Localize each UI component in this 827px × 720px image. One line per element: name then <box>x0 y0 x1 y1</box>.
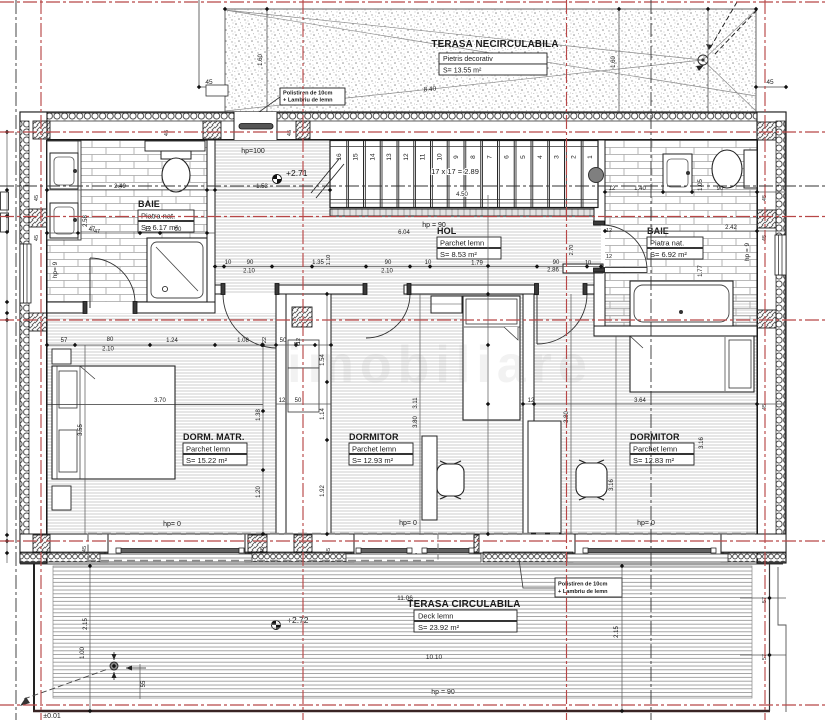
svg-text:12: 12 <box>403 153 410 161</box>
svg-text:22: 22 <box>262 337 268 343</box>
svg-text:45: 45 <box>164 130 170 136</box>
svg-text:Parchet lemn: Parchet lemn <box>186 445 230 454</box>
svg-text:+ Lambriu de lemn: + Lambriu de lemn <box>558 589 608 595</box>
svg-text:90: 90 <box>553 260 560 266</box>
svg-text:1.79: 1.79 <box>471 261 483 267</box>
svg-text:hp= 9: hp= 9 <box>52 261 59 278</box>
svg-text:S= 6.92 m²: S= 6.92 m² <box>650 250 687 259</box>
svg-text:45: 45 <box>287 130 293 136</box>
svg-text:+2.71: +2.71 <box>286 168 308 178</box>
svg-text:1.00: 1.00 <box>80 647 86 659</box>
svg-text:1.08: 1.08 <box>237 338 249 344</box>
svg-text:12: 12 <box>606 228 612 234</box>
svg-text:45: 45 <box>34 195 40 201</box>
svg-text:10: 10 <box>425 260 432 266</box>
svg-text:Deck lemn: Deck lemn <box>418 612 453 621</box>
svg-text:10: 10 <box>585 260 591 266</box>
svg-text:14: 14 <box>369 153 376 161</box>
svg-text:2: 2 <box>570 155 577 159</box>
svg-text:3.70: 3.70 <box>154 398 166 404</box>
svg-text:3: 3 <box>554 155 561 159</box>
svg-text:imobiliare: imobiliare <box>287 336 593 394</box>
svg-text:12: 12 <box>279 398 286 404</box>
svg-text:Polistiren de 10cm: Polistiren de 10cm <box>283 91 332 97</box>
svg-text:1.53: 1.53 <box>256 184 268 190</box>
svg-text:2.15: 2.15 <box>83 618 89 630</box>
svg-text:15: 15 <box>353 153 360 161</box>
svg-text:50: 50 <box>280 338 287 344</box>
svg-text:45: 45 <box>82 546 88 552</box>
svg-text:1.14: 1.14 <box>320 408 326 420</box>
svg-text:2.10: 2.10 <box>102 347 114 353</box>
svg-text:1.60: 1.60 <box>258 54 264 66</box>
svg-text:±0.01: ±0.01 <box>43 713 61 720</box>
svg-text:DORMITOR: DORMITOR <box>349 432 399 442</box>
svg-text:1: 1 <box>587 155 594 159</box>
svg-text:1.05: 1.05 <box>698 179 704 191</box>
svg-text:2.49: 2.49 <box>114 184 126 190</box>
svg-text:1.24: 1.24 <box>166 338 178 344</box>
svg-text:2.70: 2.70 <box>569 245 575 256</box>
svg-text:Pietris decorativ: Pietris decorativ <box>443 56 493 63</box>
svg-text:10: 10 <box>225 260 232 266</box>
svg-text:hp= 0: hp= 0 <box>399 520 417 527</box>
svg-text:10.10: 10.10 <box>426 654 443 661</box>
svg-text:45: 45 <box>326 548 332 554</box>
svg-text:2.10: 2.10 <box>243 269 255 275</box>
svg-text:hp= 0: hp= 0 <box>637 520 655 527</box>
svg-text:DORM. MATR.: DORM. MATR. <box>183 432 244 442</box>
svg-text:2.15: 2.15 <box>614 626 620 638</box>
svg-text:6.04: 6.04 <box>398 230 410 236</box>
svg-text:2.10: 2.10 <box>381 269 393 275</box>
svg-text:S= 15.22 m²: S= 15.22 m² <box>186 456 228 465</box>
svg-text:Parchet lemn: Parchet lemn <box>633 445 677 454</box>
svg-text:3.55: 3.55 <box>78 424 84 436</box>
svg-text:Parchet lemn: Parchet lemn <box>440 239 484 248</box>
svg-text:80: 80 <box>107 337 114 343</box>
svg-text:45: 45 <box>766 79 774 86</box>
svg-text:90: 90 <box>175 227 182 233</box>
svg-text:57: 57 <box>61 338 68 344</box>
svg-text:45: 45 <box>34 235 40 241</box>
svg-text:8.40: 8.40 <box>423 85 437 93</box>
svg-text:S= 13.55 m²: S= 13.55 m² <box>443 68 482 75</box>
svg-text:9: 9 <box>453 155 460 159</box>
svg-text:1.20: 1.20 <box>256 486 262 498</box>
svg-text:90: 90 <box>247 260 254 266</box>
svg-text:S= 12.93 m²: S= 12.93 m² <box>352 456 394 465</box>
svg-text:10: 10 <box>436 153 443 161</box>
svg-text:3.64: 3.64 <box>634 398 646 404</box>
svg-text:47: 47 <box>94 229 100 235</box>
svg-text:3.11: 3.11 <box>413 397 419 409</box>
svg-text:1.10: 1.10 <box>326 255 332 266</box>
svg-text:3.16: 3.16 <box>609 479 615 491</box>
svg-text:TERASA NECIRCULABILA: TERASA NECIRCULABILA <box>431 39 558 50</box>
svg-text:90: 90 <box>717 186 724 192</box>
svg-text:2.42: 2.42 <box>725 225 737 231</box>
svg-text:Parchet lemn: Parchet lemn <box>352 445 396 454</box>
svg-text:+ Lambriu de lemn: + Lambriu de lemn <box>283 98 333 104</box>
svg-text:Polistiren de 10cm: Polistiren de 10cm <box>558 582 607 588</box>
svg-text:1.60: 1.60 <box>611 56 617 68</box>
svg-text:S= 8.53 m²: S= 8.53 m² <box>440 250 477 259</box>
svg-text:S= 23.92 m²: S= 23.92 m² <box>418 623 460 632</box>
svg-text:12: 12 <box>609 186 616 192</box>
svg-text:hp=100: hp=100 <box>241 148 265 155</box>
svg-text:8: 8 <box>470 155 477 159</box>
svg-text:11: 11 <box>420 153 427 160</box>
svg-text:16: 16 <box>336 153 343 161</box>
svg-text:BAIE: BAIE <box>138 199 160 209</box>
svg-text:12: 12 <box>145 227 152 233</box>
svg-text:45: 45 <box>260 547 266 553</box>
svg-text:90: 90 <box>385 260 392 266</box>
svg-text:1.35: 1.35 <box>312 260 324 266</box>
svg-text:S= 12.83 m²: S= 12.83 m² <box>633 456 675 465</box>
svg-text:1.77: 1.77 <box>698 265 704 277</box>
svg-text:3.16: 3.16 <box>699 437 705 449</box>
svg-text:6: 6 <box>503 155 510 159</box>
svg-text:7: 7 <box>487 155 494 159</box>
svg-text:4.50: 4.50 <box>456 192 468 198</box>
svg-text:13: 13 <box>386 153 393 161</box>
svg-text:3.80: 3.80 <box>413 416 419 428</box>
svg-text:hp = 90: hp = 90 <box>422 222 446 229</box>
svg-text:hp= 0: hp= 0 <box>163 521 181 528</box>
svg-text:2.86: 2.86 <box>547 268 559 274</box>
svg-text:12: 12 <box>606 254 612 260</box>
svg-text:55: 55 <box>141 680 147 687</box>
svg-text:17 x 17 = 2.89: 17 x 17 = 2.89 <box>431 167 479 176</box>
svg-text:50: 50 <box>295 398 302 404</box>
svg-text:hp = 9: hp = 9 <box>744 242 751 261</box>
svg-text:DORMITOR: DORMITOR <box>630 432 680 442</box>
svg-text:1.38: 1.38 <box>256 409 262 421</box>
svg-text:1.40: 1.40 <box>634 186 646 192</box>
svg-text:11.06: 11.06 <box>397 595 413 602</box>
svg-text:TERASA CIRCULABILA: TERASA CIRCULABILA <box>407 599 520 610</box>
svg-text:Piatra nat.: Piatra nat. <box>650 239 684 248</box>
svg-text:4: 4 <box>537 155 544 159</box>
svg-text:1.92: 1.92 <box>320 485 326 497</box>
svg-text:5: 5 <box>520 155 527 159</box>
